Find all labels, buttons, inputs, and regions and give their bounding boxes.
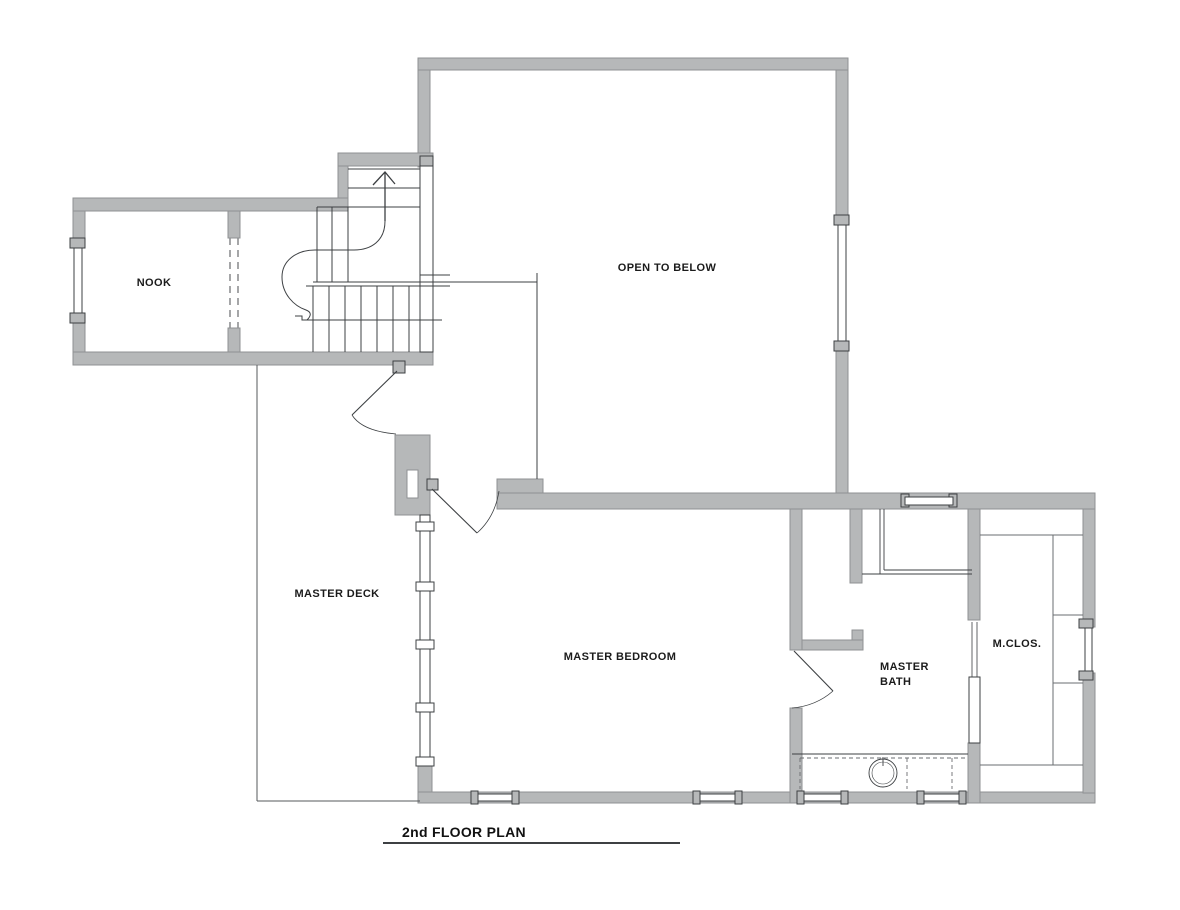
wall (836, 70, 848, 224)
wall (338, 153, 433, 166)
deck-boundary (257, 365, 420, 801)
wall (73, 198, 348, 211)
door-hinge-block (427, 479, 438, 490)
walls-layer (73, 58, 1095, 803)
room-label-master-bedroom: MASTER BEDROOM (564, 651, 677, 663)
wall (73, 320, 85, 352)
floor-plan-drawing (0, 0, 1180, 910)
wall (790, 509, 802, 650)
room-label-nook: NOOK (137, 277, 172, 289)
wall (228, 328, 240, 352)
nook-opening-dashed (230, 238, 238, 328)
vanity-sink (869, 757, 897, 787)
stairs-group (282, 169, 420, 352)
wall (420, 156, 433, 167)
room-label-master-bath: MASTER BATH (880, 660, 929, 690)
window (70, 238, 85, 323)
wall (1083, 673, 1095, 793)
window (834, 215, 849, 351)
room-label-master-bath-line1: MASTER (880, 660, 929, 675)
wall (1083, 509, 1095, 627)
title-underline (383, 842, 680, 844)
wall (968, 743, 980, 803)
room-label-master-bath-line2: BATH (880, 675, 929, 690)
room-label-master-deck: MASTER DECK (294, 588, 379, 600)
closet-shelving-group (980, 535, 1083, 765)
bedroom-door (432, 489, 499, 533)
pocket-door (969, 622, 980, 743)
wall (418, 70, 430, 167)
wall (338, 166, 348, 200)
wall (968, 509, 980, 620)
stair-side-wall (420, 166, 433, 352)
stair-up-arrow-icon (373, 172, 395, 221)
chase-notch (407, 470, 418, 498)
wall (836, 343, 848, 493)
window (1079, 619, 1093, 680)
windows-layer (70, 215, 1093, 804)
wall (73, 211, 85, 240)
doors-group (230, 238, 980, 743)
door-hinge-block (393, 361, 405, 373)
window-strip (416, 515, 434, 766)
room-label-open-to-below: OPEN TO BELOW (618, 262, 717, 274)
wall (497, 479, 543, 493)
deck-door (352, 371, 397, 434)
wall (850, 509, 862, 583)
wall (228, 211, 240, 238)
wall (497, 493, 1095, 509)
wall (418, 792, 1095, 803)
bath-door (792, 651, 833, 708)
floor-plan-canvas: NOOK OPEN TO BELOW MASTER DECK MASTER BE… (0, 0, 1180, 910)
room-label-master-closet: M.CLOS. (993, 638, 1042, 650)
wall (73, 352, 433, 365)
stair-walkline (282, 221, 385, 320)
wall (418, 58, 848, 70)
plan-title: 2nd FLOOR PLAN (402, 824, 526, 840)
shower-enclosure (862, 509, 972, 574)
wall (802, 640, 863, 650)
